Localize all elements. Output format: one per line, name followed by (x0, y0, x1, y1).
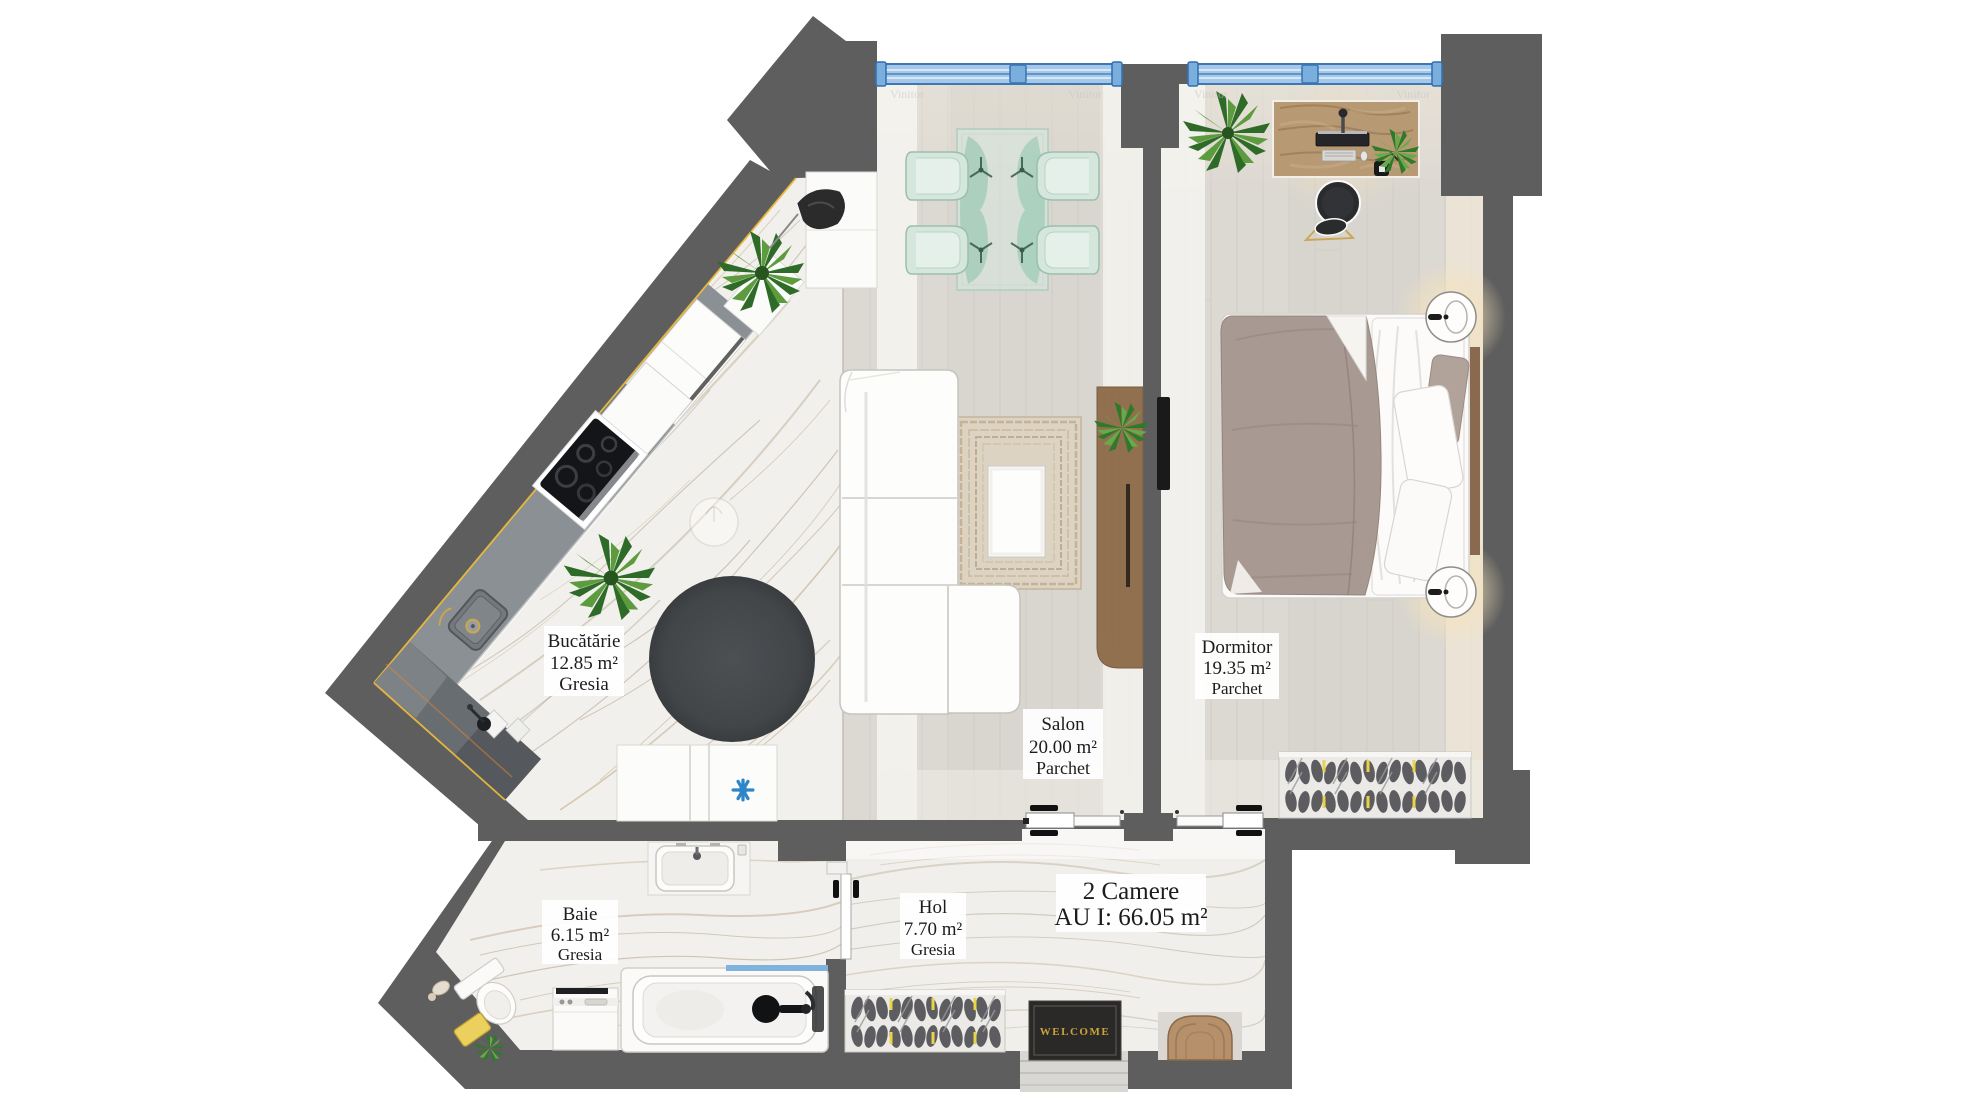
svg-text:Bucătărie: Bucătărie (548, 631, 621, 652)
svg-text:Vinitor: Vinitor (1194, 87, 1228, 101)
svg-text:Gresia: Gresia (558, 945, 603, 964)
svg-text:20.00 m²: 20.00 m² (1029, 737, 1097, 758)
svg-text:6.15 m²: 6.15 m² (551, 925, 610, 946)
svg-text:Gresia: Gresia (559, 674, 609, 695)
svg-text:7.70 m²: 7.70 m² (904, 919, 963, 940)
svg-text:Parchet: Parchet (1212, 679, 1263, 698)
svg-text:Gresia: Gresia (911, 940, 956, 959)
svg-text:2 Camere: 2 Camere (1083, 878, 1179, 905)
svg-text:19.35 m²: 19.35 m² (1203, 658, 1271, 679)
svg-text:Vinitor: Vinitor (890, 87, 924, 101)
svg-text:Vinitor: Vinitor (1068, 87, 1102, 101)
svg-text:Vinitor: Vinitor (1396, 87, 1430, 101)
svg-text:Salon: Salon (1041, 714, 1085, 735)
svg-text:Parchet: Parchet (1036, 758, 1090, 778)
svg-text:AU I: 66.05 m²: AU I: 66.05 m² (1054, 904, 1207, 931)
svg-text:12.85 m²: 12.85 m² (550, 653, 618, 674)
svg-text:Dormitor: Dormitor (1202, 637, 1273, 658)
svg-text:WELCOME: WELCOME (1040, 1026, 1110, 1038)
svg-text:Hol: Hol (919, 897, 948, 918)
svg-text:Baie: Baie (563, 904, 598, 925)
